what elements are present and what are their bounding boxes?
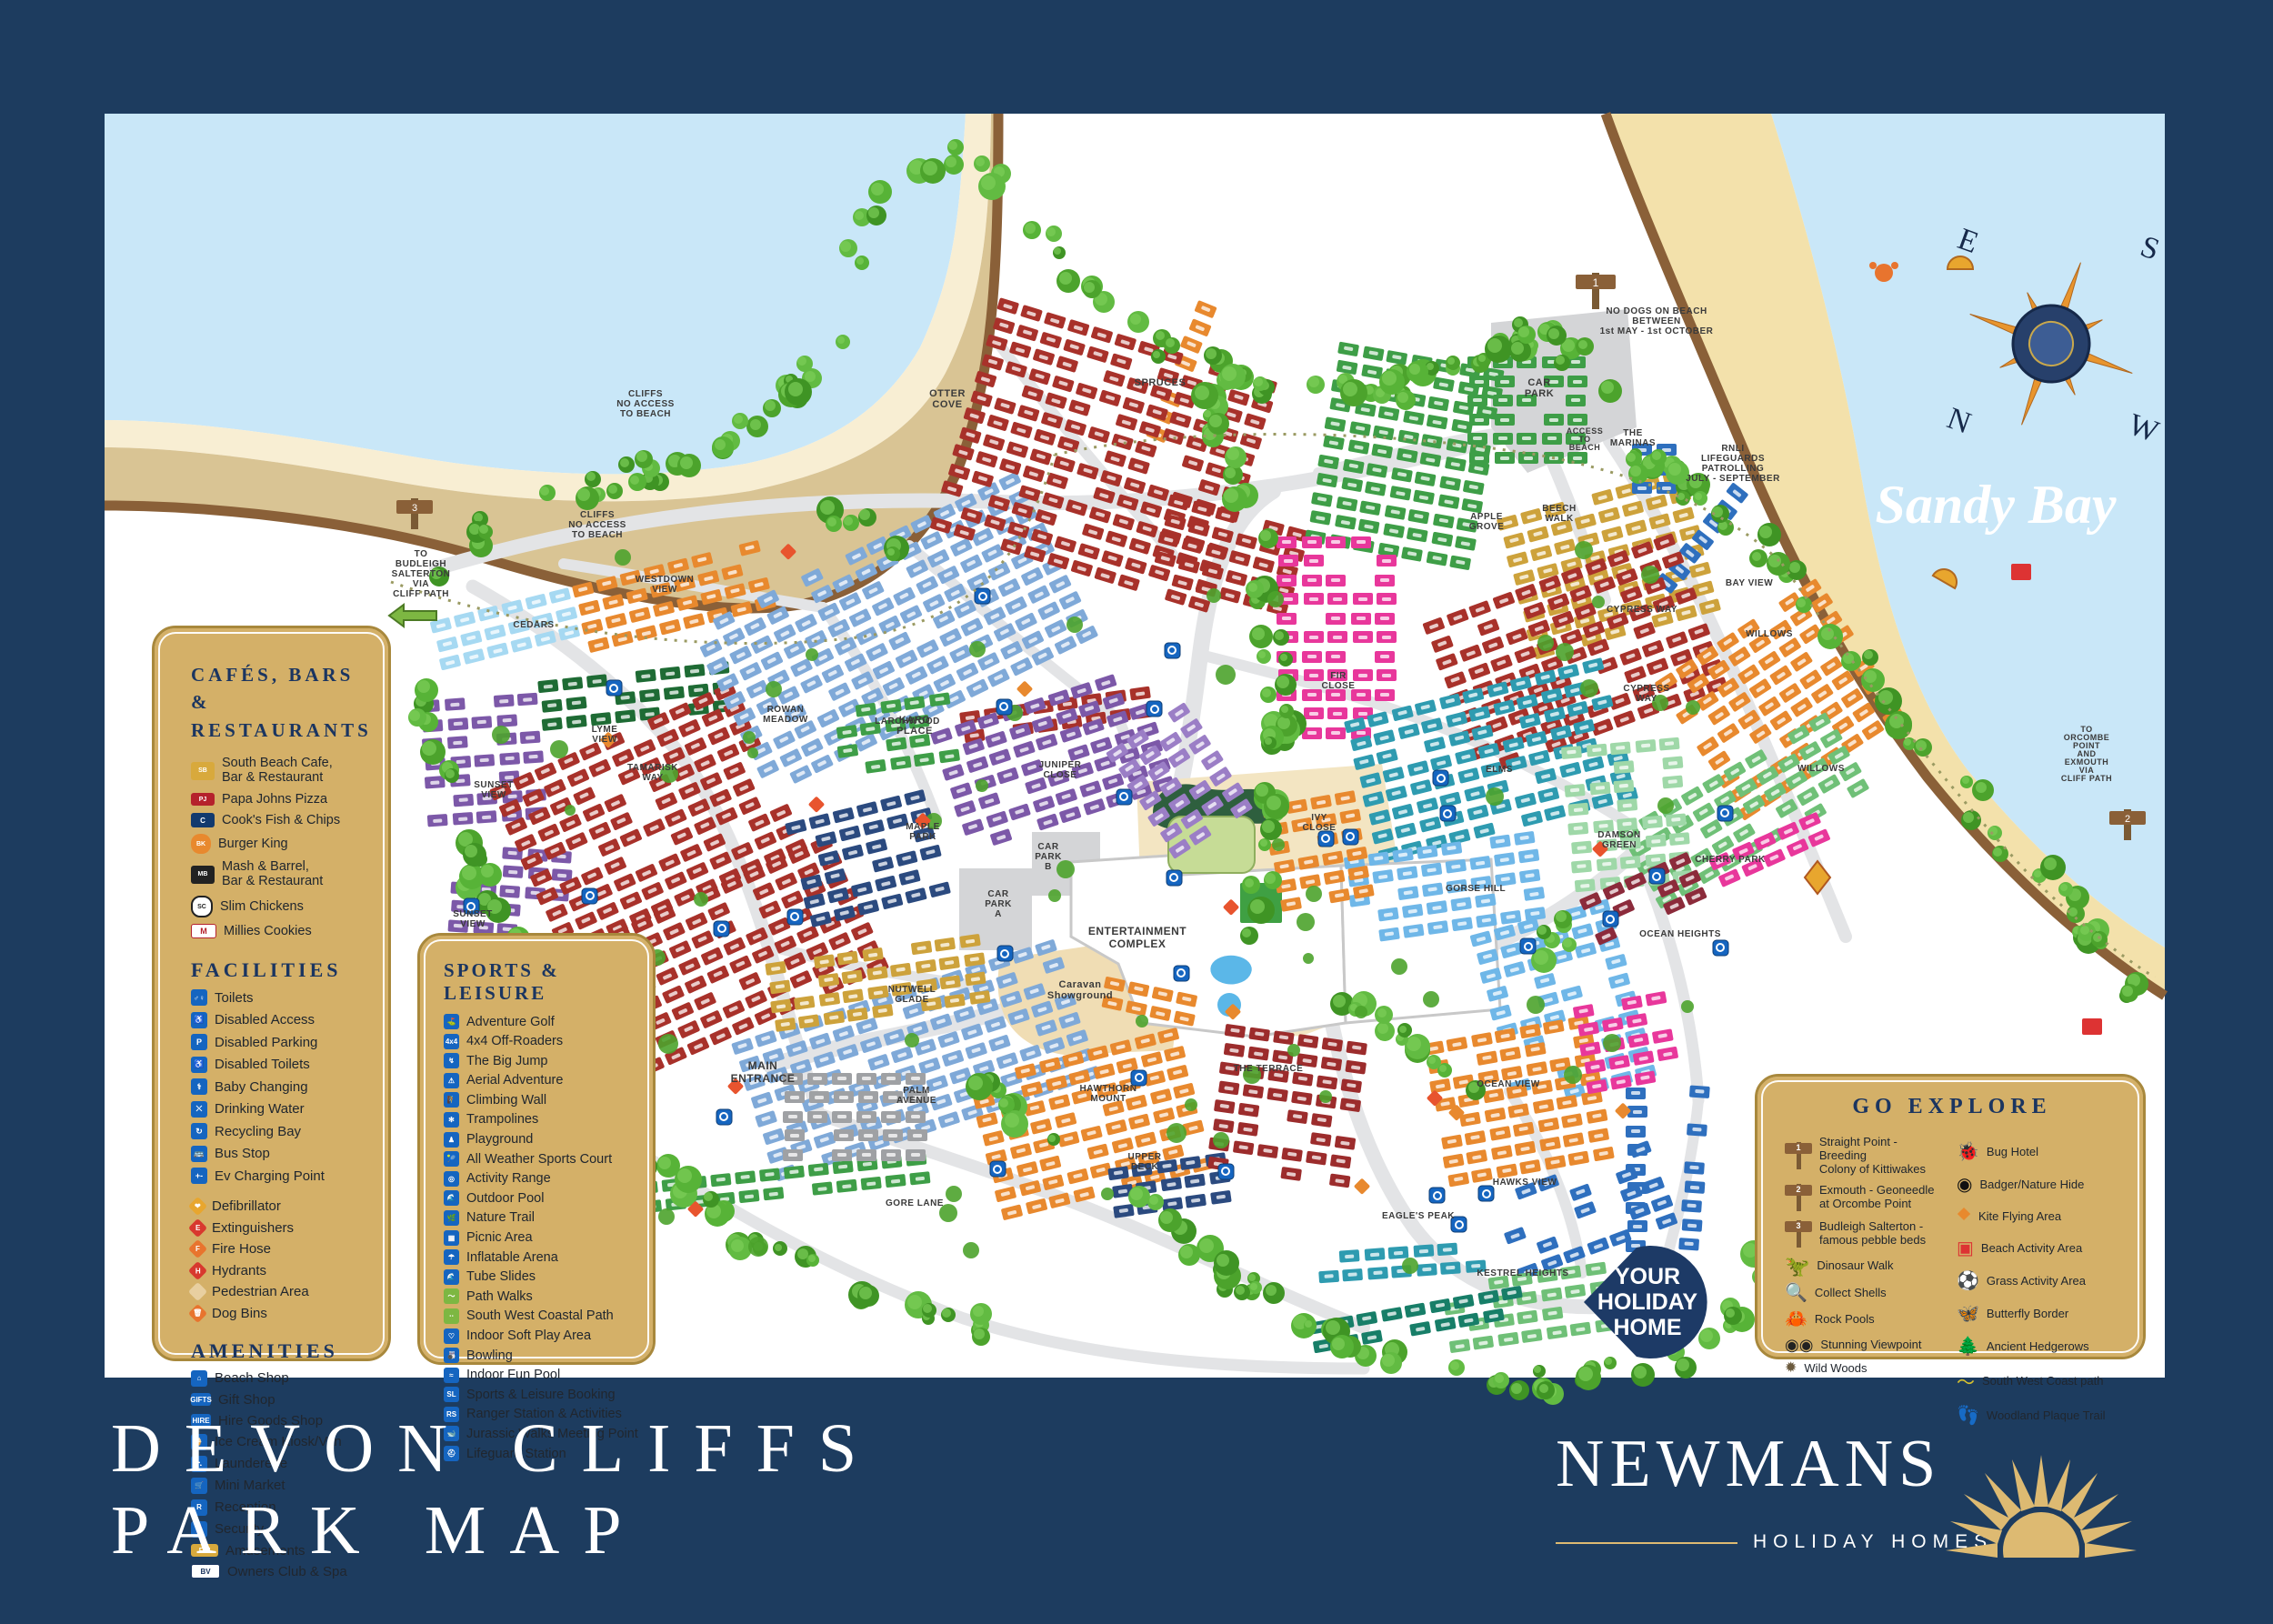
svg-text:BEACH: BEACH xyxy=(1569,443,1601,452)
svg-text:CLOSE: CLOSE xyxy=(1044,770,1077,780)
svg-text:CLIFF PATH: CLIFF PATH xyxy=(2061,774,2112,783)
svg-text:JUNIPER: JUNIPER xyxy=(1039,760,1082,770)
svg-text:VIEW: VIEW xyxy=(460,919,486,929)
svg-text:YOUR: YOUR xyxy=(1615,1264,1680,1289)
svg-text:HOLIDAY: HOLIDAY xyxy=(1597,1289,1698,1315)
svg-text:TO BEACH: TO BEACH xyxy=(620,409,671,419)
svg-text:LARCHWOOD: LARCHWOOD xyxy=(875,717,940,727)
svg-text:UPPER: UPPER xyxy=(1128,1152,1162,1162)
svg-text:BEECH: BEECH xyxy=(1542,504,1577,514)
svg-text:CAR: CAR xyxy=(987,889,1008,899)
svg-text:CYPRESS WAY: CYPRESS WAY xyxy=(1607,605,1677,615)
svg-text:TAMARISK: TAMARISK xyxy=(627,763,678,773)
svg-text:PLACE: PLACE xyxy=(896,726,933,737)
svg-text:NO ACCESS: NO ACCESS xyxy=(568,520,626,530)
svg-text:CYPRESS: CYPRESS xyxy=(1623,684,1669,694)
svg-text:PALM: PALM xyxy=(903,1086,930,1096)
svg-text:A: A xyxy=(995,909,1002,919)
svg-text:RNLI: RNLI xyxy=(1721,444,1744,454)
svg-text:AVENUE: AVENUE xyxy=(896,1096,936,1106)
svg-text:WAY: WAY xyxy=(642,773,663,783)
svg-text:MARINAS: MARINAS xyxy=(1610,438,1656,448)
svg-text:OCEAN HEIGHTS: OCEAN HEIGHTS xyxy=(1639,929,1721,939)
svg-text:PARK: PARK xyxy=(1525,388,1554,399)
svg-text:ELMS: ELMS xyxy=(1486,765,1513,775)
svg-text:TO: TO xyxy=(415,549,428,559)
svg-text:CLIFF PATH: CLIFF PATH xyxy=(393,589,449,599)
svg-text:ENTERTAINMENT: ENTERTAINMENT xyxy=(1088,925,1187,937)
svg-text:VIA: VIA xyxy=(413,579,429,589)
svg-text:GREEN: GREEN xyxy=(1602,840,1637,850)
svg-text:VIEW: VIEW xyxy=(652,585,677,595)
svg-text:Sandy Bay: Sandy Bay xyxy=(1875,475,2116,535)
svg-text:WESTDOWN: WESTDOWN xyxy=(636,575,695,585)
svg-text:CLOSE: CLOSE xyxy=(1322,681,1356,691)
svg-text:WAY: WAY xyxy=(1636,694,1657,704)
svg-text:THE: THE xyxy=(1623,428,1643,438)
svg-text:1: 1 xyxy=(1593,276,1599,289)
svg-text:ENTRANCE: ENTRANCE xyxy=(731,1072,796,1085)
svg-text:PATROLLING: PATROLLING xyxy=(1702,464,1765,474)
svg-text:GROVE: GROVE xyxy=(1469,522,1505,532)
svg-text:MAPLE: MAPLE xyxy=(906,822,940,832)
svg-text:BETWEEN: BETWEEN xyxy=(1632,316,1681,326)
svg-text:SALTERTON: SALTERTON xyxy=(392,569,451,579)
svg-text:NO DOGS ON BEACH: NO DOGS ON BEACH xyxy=(1606,306,1707,316)
svg-text:B: B xyxy=(1045,862,1052,872)
svg-text:CLOSE: CLOSE xyxy=(1303,823,1337,833)
svg-text:EAGLE'S PEAK: EAGLE'S PEAK xyxy=(1382,1211,1455,1221)
svg-text:NUTWELL: NUTWELL xyxy=(888,985,936,995)
svg-text:KESTREL HEIGHTS: KESTREL HEIGHTS xyxy=(1477,1268,1568,1278)
svg-text:HOME: HOME xyxy=(1614,1315,1682,1340)
svg-text:VIEW: VIEW xyxy=(481,790,506,800)
svg-text:WILLOWS: WILLOWS xyxy=(1797,764,1845,774)
svg-text:FIR: FIR xyxy=(1330,671,1347,681)
svg-text:CLIFFS: CLIFFS xyxy=(580,510,615,520)
svg-text:2: 2 xyxy=(2125,814,2130,825)
svg-text:3: 3 xyxy=(412,503,417,514)
svg-text:LIFEGUARDS: LIFEGUARDS xyxy=(1701,454,1765,464)
svg-text:DAMSON: DAMSON xyxy=(1597,830,1640,840)
svg-text:COMPLEX: COMPLEX xyxy=(1109,937,1167,950)
svg-text:HAWKS VIEW: HAWKS VIEW xyxy=(1493,1178,1557,1188)
svg-text:OCEAN VIEW: OCEAN VIEW xyxy=(1477,1079,1540,1089)
svg-text:HAWTHORN: HAWTHORN xyxy=(1080,1084,1137,1094)
svg-text:GLADE: GLADE xyxy=(895,995,929,1005)
svg-text:SUNSET: SUNSET xyxy=(474,780,514,790)
svg-text:BAY VIEW: BAY VIEW xyxy=(1726,578,1773,588)
svg-text:CEDARS: CEDARS xyxy=(513,620,554,630)
svg-text:VIEW: VIEW xyxy=(592,735,617,745)
svg-text:MEADOW: MEADOW xyxy=(763,715,808,725)
svg-text:CAR: CAR xyxy=(1037,842,1058,852)
svg-text:CAR: CAR xyxy=(1527,377,1550,388)
svg-text:PARK: PARK xyxy=(1035,852,1062,862)
svg-text:PARK: PARK xyxy=(985,899,1012,909)
svg-text:DECK: DECK xyxy=(1131,1162,1159,1172)
svg-text:OTTER: OTTER xyxy=(929,388,966,399)
svg-text:LYME: LYME xyxy=(592,725,618,735)
svg-text:WILLOWS: WILLOWS xyxy=(1746,629,1793,639)
svg-text:ROWAN: ROWAN xyxy=(767,705,805,715)
svg-text:APPLE: APPLE xyxy=(1470,512,1503,522)
svg-text:MOUNT: MOUNT xyxy=(1090,1094,1126,1104)
svg-text:SUNSET: SUNSET xyxy=(453,909,493,919)
svg-text:Showground: Showground xyxy=(1047,990,1113,1001)
svg-text:BUDLEIGH: BUDLEIGH xyxy=(396,559,446,569)
svg-text:THE TERRACE: THE TERRACE xyxy=(1234,1064,1304,1074)
svg-text:1st MAY - 1st OCTOBER: 1st MAY - 1st OCTOBER xyxy=(1600,326,1714,336)
svg-text:MAIN: MAIN xyxy=(748,1059,778,1072)
svg-text:PARK: PARK xyxy=(909,832,936,842)
svg-text:WALK: WALK xyxy=(1545,514,1574,524)
svg-text:COVE: COVE xyxy=(932,399,962,410)
svg-text:JULY - SEPTEMBER: JULY - SEPTEMBER xyxy=(1686,474,1780,484)
svg-text:IVY: IVY xyxy=(1311,813,1327,823)
svg-text:SPRUCES: SPRUCES xyxy=(1135,377,1187,388)
svg-text:NO ACCESS: NO ACCESS xyxy=(616,399,675,409)
svg-text:GORSE HILL: GORSE HILL xyxy=(1446,884,1506,894)
svg-text:Caravan: Caravan xyxy=(1059,979,1102,990)
svg-text:CHERRY PARK: CHERRY PARK xyxy=(1695,855,1766,865)
svg-text:TO BEACH: TO BEACH xyxy=(572,530,623,540)
svg-text:CLIFFS: CLIFFS xyxy=(628,389,663,399)
svg-text:GORE LANE: GORE LANE xyxy=(886,1198,944,1208)
